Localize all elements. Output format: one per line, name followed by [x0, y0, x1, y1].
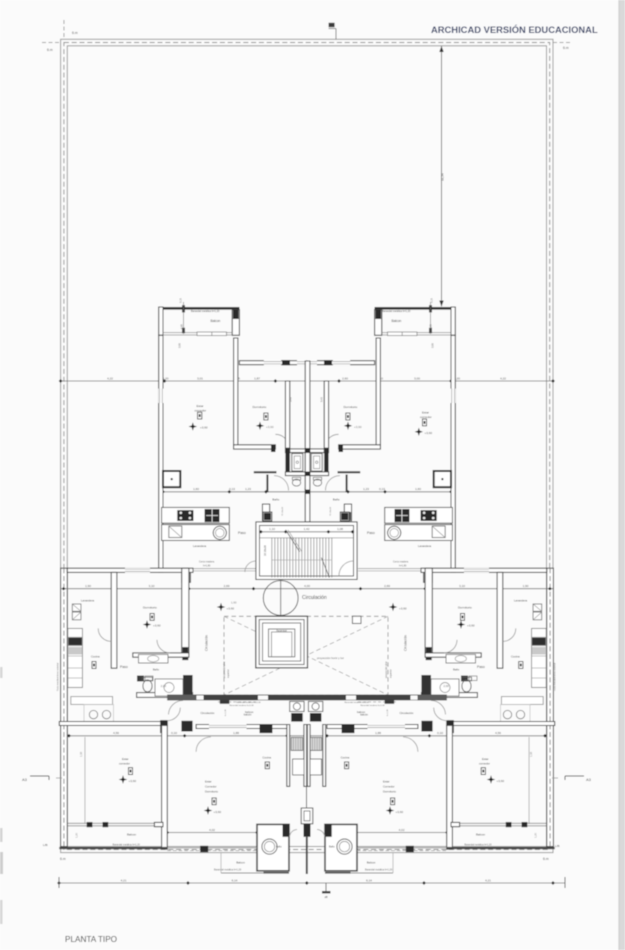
- svg-text:0,90: 0,90: [432, 343, 435, 348]
- svg-text:Circulación: Circulación: [302, 595, 327, 601]
- svg-text:4,21: 4,21: [121, 878, 127, 882]
- svg-text:L/B: L/B: [43, 843, 48, 847]
- svg-text:Dormitorio: Dormitorio: [344, 405, 358, 409]
- svg-text:4,02: 4,02: [399, 828, 405, 832]
- svg-text:1,08: 1,08: [337, 527, 343, 531]
- svg-text:Barandal metálica h=1,20: Barandal metálica h=1,20: [214, 869, 242, 872]
- svg-text:+3,60: +3,60: [396, 810, 404, 814]
- svg-text:Dormitorio: Dormitorio: [143, 606, 157, 610]
- svg-text:balcon: balcon: [245, 710, 254, 714]
- svg-text:Lavandera: Lavandera: [514, 599, 528, 603]
- svg-text:Ascensor: Ascensor: [276, 628, 287, 632]
- svg-text:2,00: 2,00: [443, 684, 449, 688]
- svg-text:Paso: Paso: [120, 665, 128, 669]
- svg-text:Paso: Paso: [477, 665, 485, 669]
- svg-text:2,69: 2,69: [384, 584, 390, 588]
- svg-text:Balcon: Balcon: [211, 319, 221, 323]
- svg-text:PLANTA TIPO: PLANTA TIPO: [65, 935, 117, 944]
- svg-text:4,00: 4,00: [304, 584, 310, 588]
- svg-text:6.m: 6.m: [47, 48, 53, 52]
- svg-text:Cocina: Cocina: [511, 655, 520, 659]
- svg-text:Baño: Baño: [276, 846, 282, 849]
- svg-text:11,34: 11,34: [441, 173, 445, 181]
- svg-text:Dormitorio: Dormitorio: [458, 606, 472, 610]
- svg-text:4,21: 4,21: [485, 878, 491, 882]
- svg-text:0,13: 0,13: [379, 487, 385, 491]
- svg-text:Dormitorio: Dormitorio: [383, 790, 396, 794]
- svg-text:Dormitorio: Dormitorio: [205, 790, 218, 794]
- svg-text:Circulación: Circulación: [205, 635, 209, 651]
- svg-text:h=1,00: h=1,00: [387, 708, 389, 716]
- svg-text:1,88: 1,88: [375, 731, 381, 735]
- svg-text:0,10: 0,10: [171, 731, 177, 735]
- svg-text:ARCHICAD VERSIÓN EDUCACIONAL: ARCHICAD VERSIÓN EDUCACIONAL: [431, 24, 598, 35]
- svg-text:Barandal metálica h=1,20: Barandal metálica h=1,20: [382, 310, 411, 313]
- svg-text:Barandal metálica h=1,20: Barandal metálica h=1,20: [365, 869, 393, 872]
- svg-text:Ruta mediterráneo exterior: Ruta mediterráneo exterior: [57, 662, 60, 691]
- svg-text:Baño: Baño: [333, 498, 340, 502]
- svg-text:Circulación: Circulación: [404, 635, 408, 651]
- svg-text:Cocina: Cocina: [341, 755, 350, 759]
- svg-text:d8: d8: [324, 895, 328, 899]
- svg-text:Comedor: Comedor: [383, 785, 395, 789]
- svg-text:Lavandera: Lavandera: [81, 599, 95, 603]
- svg-text:1,87: 1,87: [254, 376, 260, 380]
- svg-text:3,00: 3,00: [414, 376, 420, 380]
- svg-text:1,60: 1,60: [415, 487, 421, 491]
- svg-text:+3,60: +3,60: [200, 426, 208, 430]
- svg-text:Cerco madera: Cerco madera: [199, 561, 215, 564]
- svg-text:+3,60: +3,60: [129, 779, 137, 783]
- svg-text:comedor: comedor: [119, 762, 130, 766]
- svg-text:Cocina: Cocina: [91, 655, 100, 659]
- svg-text:Estar: Estar: [383, 780, 390, 784]
- svg-text:proyección plan: proyección plan: [385, 661, 388, 678]
- svg-text:Balcon: Balcon: [127, 833, 137, 837]
- svg-text:Ruta mediterráneo exterior: Ruta mediterráneo exterior: [554, 662, 557, 691]
- svg-text:3,10: 3,10: [459, 584, 465, 588]
- svg-text:1,20: 1,20: [163, 376, 169, 380]
- svg-text:Lavandera: Lavandera: [193, 544, 207, 548]
- svg-text:4,65: 4,65: [181, 324, 184, 329]
- svg-text:3,01: 3,01: [197, 376, 203, 380]
- svg-text:Barandal metálica h=1,20: Barandal metálica h=1,20: [113, 843, 141, 846]
- svg-text:Estar: Estar: [205, 780, 212, 784]
- svg-text:comedor: comedor: [479, 762, 490, 766]
- svg-text:balcon: balcon: [357, 710, 366, 714]
- svg-text:Circulación: Circulación: [400, 711, 414, 715]
- svg-text:2,69: 2,69: [224, 584, 230, 588]
- svg-text:Cerco madera: Cerco madera: [393, 561, 409, 564]
- svg-text:h=1,00: h=1,00: [225, 708, 227, 716]
- svg-text:Balcon: Balcon: [236, 861, 245, 865]
- svg-text:Paso: Paso: [238, 531, 246, 535]
- svg-text:h=1,80: h=1,80: [203, 565, 211, 568]
- svg-text:+3,60: +3,60: [354, 425, 362, 429]
- svg-text:1,90: 1,90: [523, 584, 529, 588]
- svg-text:4,65: 4,65: [430, 324, 433, 329]
- svg-text:1,60: 1,60: [231, 601, 237, 605]
- svg-text:0,15: 0,15: [180, 298, 183, 303]
- svg-text:3,10: 3,10: [149, 584, 155, 588]
- svg-text:4,56: 4,56: [495, 731, 501, 735]
- svg-text:1,38: 1,38: [79, 751, 83, 757]
- svg-text:6,14: 6,14: [366, 878, 372, 882]
- svg-text:Balcon: Balcon: [367, 861, 376, 865]
- svg-text:+3,60: +3,60: [214, 810, 222, 814]
- svg-text:5,40: 5,40: [321, 397, 324, 402]
- svg-text:2,60: 2,60: [342, 376, 348, 380]
- svg-text:comedor: comedor: [420, 415, 432, 419]
- svg-text:Barandal metálica h=1,20: Barandal metálica h=1,20: [191, 310, 220, 313]
- svg-text:+3,60: +3,60: [153, 624, 161, 628]
- svg-text:+3,60: +3,60: [266, 425, 274, 429]
- svg-text:Baño: Baño: [329, 846, 335, 849]
- svg-text:6.m: 6.m: [60, 857, 66, 861]
- svg-text:Paso: Paso: [367, 531, 375, 535]
- svg-text:proyección plan: proyección plan: [223, 661, 226, 678]
- svg-text:A3: A3: [586, 777, 592, 782]
- svg-text:Lavandera: Lavandera: [418, 544, 432, 548]
- svg-text:Comedor: Comedor: [205, 785, 217, 789]
- svg-text:Barandal metálica h=1,20: Barandal metálica h=1,20: [464, 843, 492, 846]
- svg-text:Balcon: Balcon: [392, 319, 402, 323]
- svg-text:75 19x29: 75 19x29: [282, 506, 284, 516]
- svg-text:0,13: 0,13: [229, 487, 235, 491]
- svg-text:h=1,80: h=1,80: [399, 565, 407, 568]
- svg-text:superior: superior: [227, 669, 230, 678]
- svg-text:+3,60: +3,60: [399, 607, 407, 611]
- svg-text:1,90: 1,90: [85, 584, 91, 588]
- svg-text:1,20: 1,20: [75, 832, 79, 838]
- svg-text:Estar: Estar: [422, 411, 429, 415]
- svg-text:Cocina: Cocina: [262, 755, 271, 759]
- svg-text:0,90: 0,90: [179, 343, 182, 348]
- svg-text:1,20: 1,20: [534, 832, 538, 838]
- svg-text:0,10: 0,10: [437, 731, 443, 735]
- svg-text:2,00: 2,00: [161, 684, 167, 688]
- svg-text:Baño: Baño: [153, 668, 160, 672]
- svg-text:+3,60: +3,60: [467, 624, 475, 628]
- svg-text:Estar: Estar: [197, 404, 204, 408]
- svg-text:1,88: 1,88: [233, 731, 239, 735]
- svg-text:1,23: 1,23: [363, 487, 369, 491]
- svg-text:1,42: 1,42: [304, 527, 310, 531]
- svg-text:+3,60: +3,60: [425, 431, 433, 435]
- svg-text:4,22: 4,22: [500, 376, 506, 380]
- svg-text:6.m: 6.m: [543, 857, 549, 861]
- svg-text:+3,60: +3,60: [497, 779, 505, 783]
- svg-text:0,15: 0,15: [431, 298, 434, 303]
- svg-text:4,22: 4,22: [107, 376, 113, 380]
- svg-text:+3,60: +3,60: [227, 607, 235, 611]
- svg-text:1,10: 1,10: [269, 527, 275, 531]
- svg-text:Estar: Estar: [122, 757, 129, 761]
- svg-text:1,38: 1,38: [529, 751, 533, 757]
- svg-text:4,02: 4,02: [209, 828, 215, 832]
- svg-text:superior: superior: [389, 669, 392, 678]
- svg-text:5,40: 5,40: [290, 397, 293, 402]
- svg-text:Baño: Baño: [453, 668, 460, 672]
- svg-text:Circulación: Circulación: [201, 711, 215, 715]
- svg-text:16 18x28: 16 18x28: [263, 545, 267, 556]
- svg-text:proyección horiz y luz: proyección horiz y luz: [317, 656, 344, 660]
- svg-text:L/B: L/B: [555, 844, 560, 848]
- svg-text:Dormitorio: Dormitorio: [253, 405, 267, 409]
- svg-text:4,56: 4,56: [113, 731, 119, 735]
- svg-text:A3: A3: [22, 777, 28, 782]
- svg-text:75 19x29: 75 19x29: [330, 506, 332, 516]
- svg-text:Estar: Estar: [482, 757, 489, 761]
- svg-text:1,23: 1,23: [245, 487, 251, 491]
- svg-text:1,60: 1,60: [193, 487, 199, 491]
- svg-text:Baño: Baño: [272, 498, 279, 502]
- svg-text:6.m: 6.m: [563, 46, 569, 50]
- svg-text:6,14: 6,14: [232, 878, 238, 882]
- svg-text:6.m: 6.m: [72, 31, 78, 35]
- svg-text:Balcon: Balcon: [476, 833, 486, 837]
